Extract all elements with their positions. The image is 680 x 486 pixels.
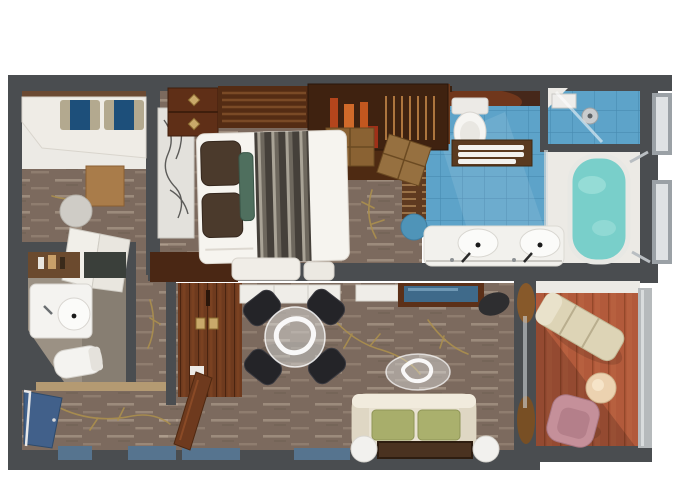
wall-balcony-bottom bbox=[536, 446, 652, 462]
foot-cushion bbox=[304, 262, 334, 280]
round-stool bbox=[60, 195, 92, 227]
double-sink-vanity bbox=[424, 226, 564, 266]
desk-reflection bbox=[408, 288, 458, 291]
bottom-window bbox=[58, 446, 92, 460]
tub bbox=[570, 156, 628, 262]
bed-pillow bbox=[202, 193, 243, 238]
glass-dining-table bbox=[265, 307, 325, 367]
bottom-window bbox=[128, 446, 176, 460]
cabinet-slats bbox=[386, 96, 434, 140]
nightstand bbox=[168, 88, 218, 136]
glass-coffee-table bbox=[386, 354, 450, 390]
towel bbox=[458, 152, 524, 157]
green-cushion bbox=[372, 410, 414, 440]
wall-shower-bottom bbox=[540, 144, 644, 152]
sink-drain bbox=[476, 243, 481, 248]
accent-pillow bbox=[239, 152, 255, 220]
white-cabinet bbox=[356, 285, 398, 301]
headboard-shelf bbox=[218, 86, 310, 128]
glass-partition bbox=[544, 150, 548, 232]
water-ripple bbox=[592, 220, 616, 236]
wardrobe-gold-handle bbox=[196, 318, 205, 329]
bench-pillow bbox=[60, 100, 100, 130]
floorplan-svg bbox=[0, 0, 680, 486]
shower-head-center bbox=[588, 114, 593, 119]
drain bbox=[72, 314, 77, 319]
water-ripple bbox=[578, 176, 606, 194]
door-handle bbox=[52, 418, 56, 422]
towel bbox=[458, 145, 524, 150]
teal-stool bbox=[401, 214, 427, 240]
faucet-chrome bbox=[450, 258, 454, 262]
desk-with-blue-top bbox=[398, 283, 484, 307]
bottle bbox=[60, 257, 65, 269]
wall-shower-left bbox=[540, 88, 548, 148]
bottom-window bbox=[182, 448, 240, 460]
pillow-blue-center bbox=[114, 100, 134, 130]
double-bed bbox=[196, 130, 349, 264]
bench-pillow bbox=[104, 100, 144, 130]
bottom-window bbox=[294, 448, 350, 460]
wall-corridor bbox=[166, 281, 176, 405]
wall-wc-right bbox=[126, 242, 136, 390]
striped-runner bbox=[254, 131, 311, 262]
window-bay-upper-glass bbox=[656, 97, 668, 151]
towel bbox=[458, 159, 516, 164]
sheet-fold bbox=[205, 248, 253, 249]
bed-pillow bbox=[200, 141, 241, 186]
side-table bbox=[351, 436, 377, 462]
sink-drain bbox=[538, 243, 543, 248]
dressing-trim bbox=[22, 91, 146, 97]
bottle bbox=[48, 255, 56, 269]
towel-mat bbox=[452, 140, 532, 166]
balcony-railing-highlight bbox=[641, 290, 644, 446]
balcony-door-glass bbox=[523, 316, 527, 408]
dark-counter bbox=[84, 252, 126, 278]
floorplan-render bbox=[0, 0, 680, 486]
green-cushion bbox=[418, 410, 460, 440]
wardrobe-gold-handle bbox=[209, 318, 218, 329]
door-frame-strip bbox=[36, 382, 166, 391]
round-table-highlight bbox=[592, 379, 604, 391]
corner-sink bbox=[30, 284, 92, 338]
wood-side-table bbox=[86, 166, 124, 206]
balcony-railing bbox=[638, 288, 652, 448]
side-table bbox=[473, 436, 499, 462]
bottle bbox=[38, 257, 44, 269]
rug bbox=[378, 442, 472, 458]
foot-cushion bbox=[232, 258, 300, 280]
window-bay-lower-glass bbox=[656, 184, 668, 260]
wardrobe-handle-slot bbox=[206, 290, 210, 306]
sofa-back bbox=[352, 394, 476, 408]
faucet-chrome bbox=[512, 258, 516, 262]
wall-wc-left bbox=[18, 242, 28, 390]
pillow-blue-center bbox=[70, 100, 90, 130]
balcony-sill bbox=[536, 281, 640, 293]
